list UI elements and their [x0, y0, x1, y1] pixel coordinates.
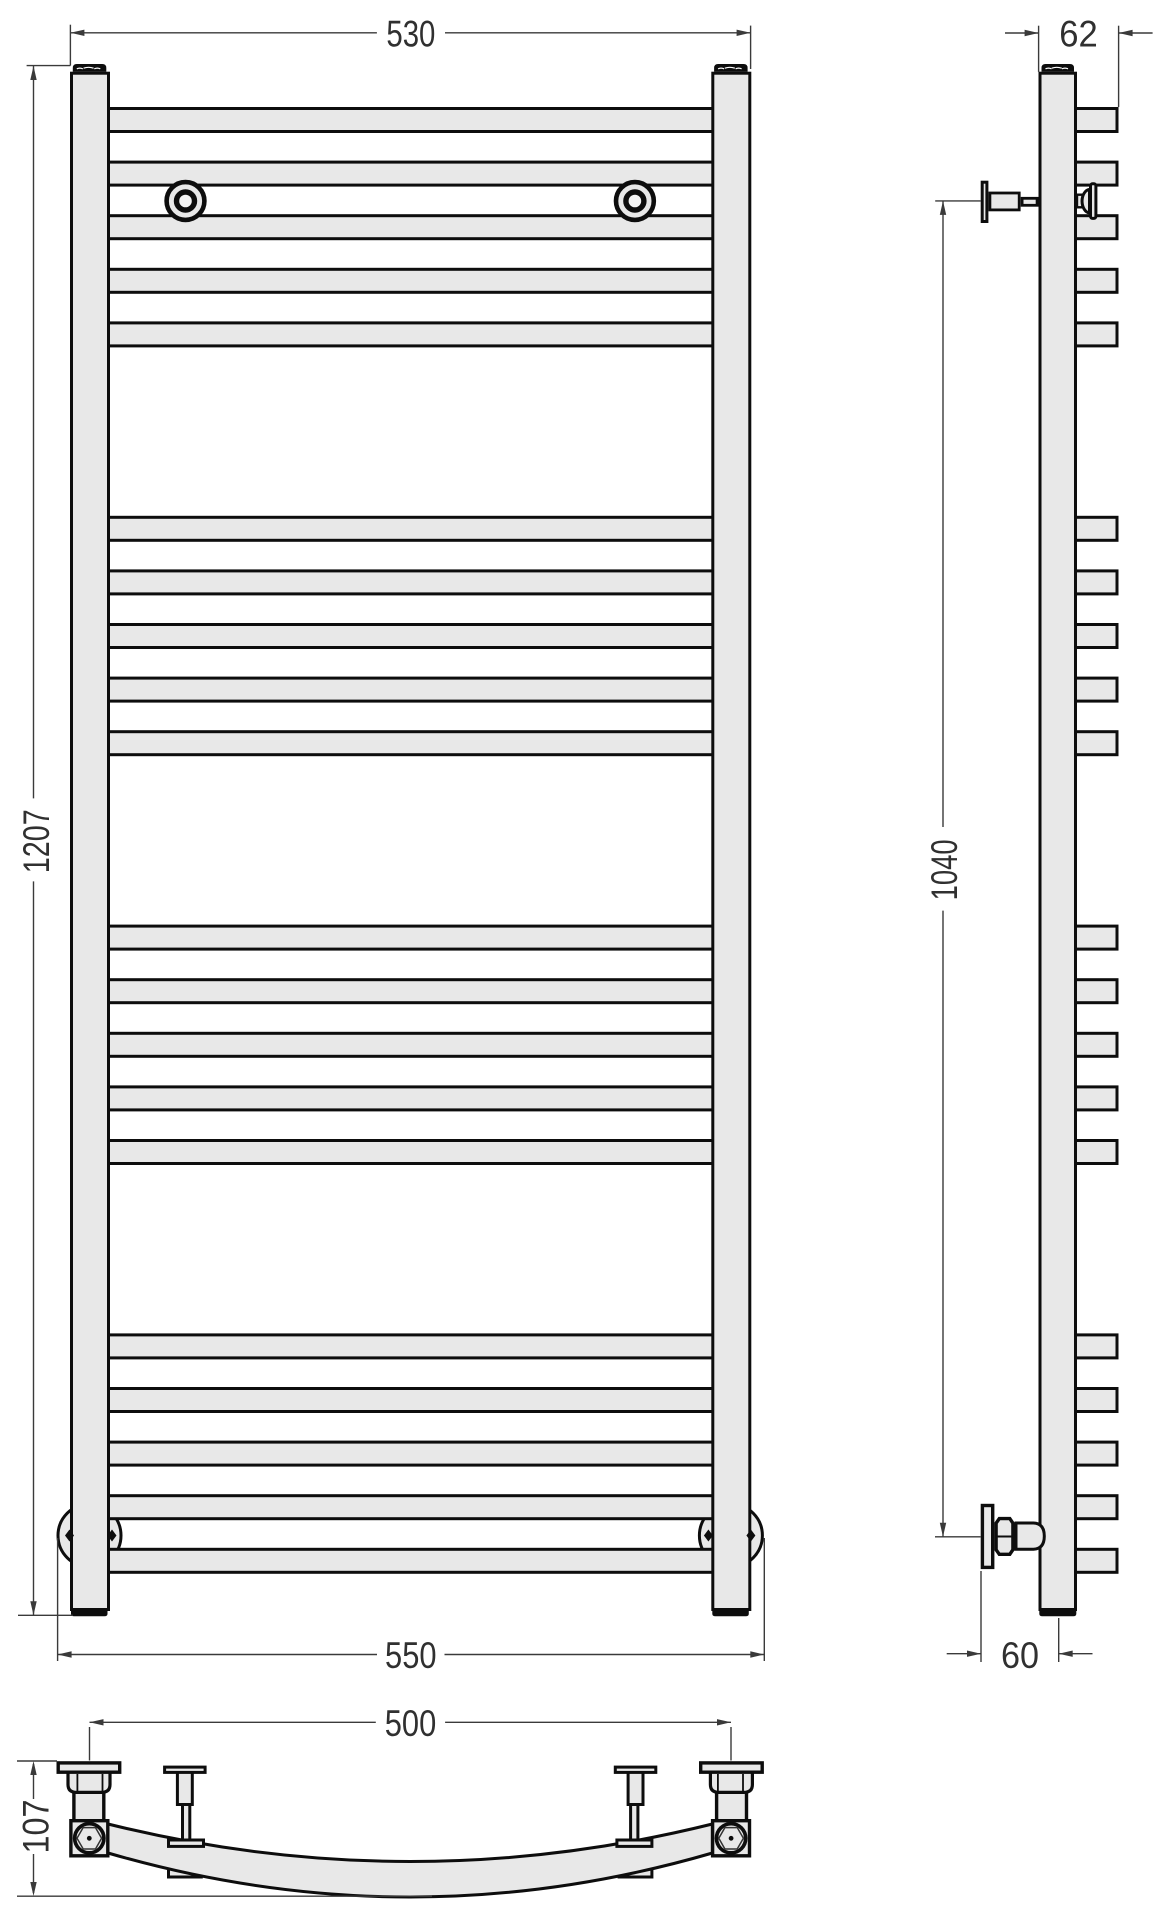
svg-text:500: 500: [385, 1703, 437, 1744]
svg-text:1040: 1040: [924, 839, 965, 900]
svg-text:107: 107: [16, 1800, 57, 1854]
svg-text:1207: 1207: [16, 809, 57, 873]
svg-text:62: 62: [1059, 13, 1098, 54]
svg-text:60: 60: [1001, 1635, 1039, 1676]
svg-text:550: 550: [385, 1635, 437, 1676]
svg-text:530: 530: [386, 13, 435, 54]
